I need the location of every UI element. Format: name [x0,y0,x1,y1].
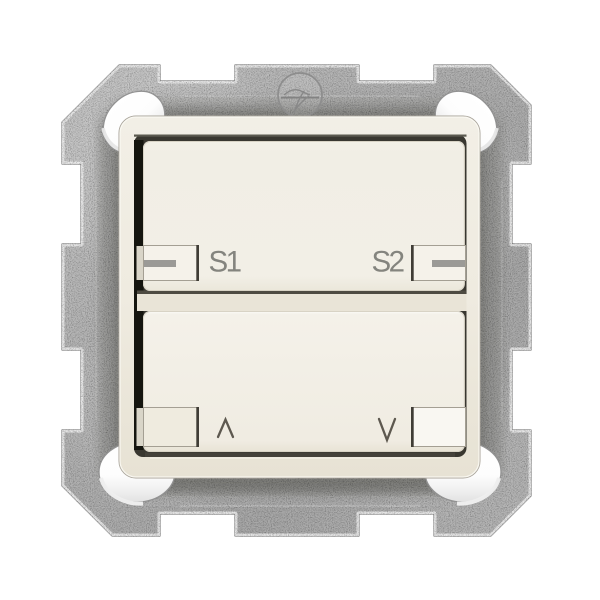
svg-text:S2: S2 [372,246,404,279]
svg-text:S1: S1 [209,246,241,279]
